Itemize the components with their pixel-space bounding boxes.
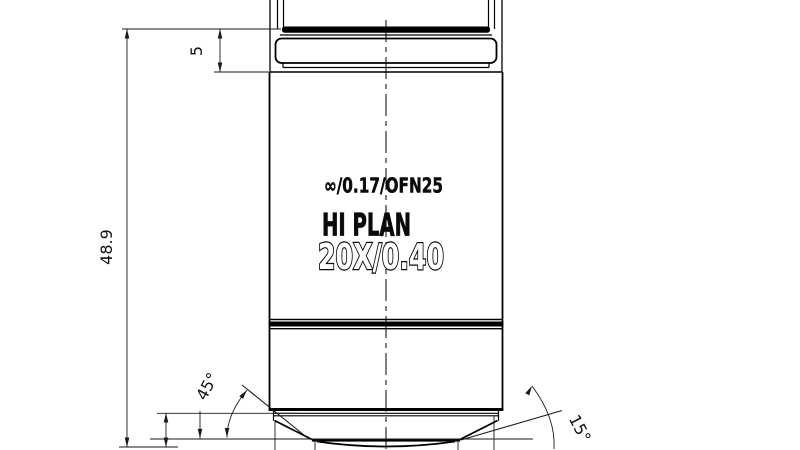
arrow-thread-bottom <box>218 63 223 73</box>
arrow-chamfer-lower <box>225 428 230 438</box>
arrow-height-top <box>125 29 130 39</box>
arrow-step-small <box>198 429 203 439</box>
label-chamfer-angle: 45° <box>192 369 222 403</box>
engraving-magnification-line: 20X/0.40 <box>318 237 444 278</box>
engraved-markings: ∞/0.17/OFN25 HI PLAN 20X/0.40 <box>318 174 444 279</box>
arrow-height-bottom <box>125 438 130 448</box>
engraving-spec-line: ∞/0.17/OFN25 <box>324 174 443 198</box>
arrow-thread-top <box>218 29 223 39</box>
technical-drawing-canvas: 48.9 5 45° 15° ∞/0.17/OFN25 HI PLAN 20X/… <box>0 0 800 450</box>
arrow-front-small-top <box>164 413 169 423</box>
front-angle-arc <box>532 386 554 449</box>
chamfer-ref-line <box>242 385 307 438</box>
cone-right-slant <box>459 421 498 441</box>
label-front-angle: 15° <box>565 411 595 445</box>
chamfer-arc <box>227 390 247 438</box>
arrow-chamfer-upper <box>239 389 248 399</box>
label-thread-length: 5 <box>187 46 206 56</box>
front-angle-ref-line <box>461 411 562 441</box>
objective-drawing: 48.9 5 45° 15° ∞/0.17/OFN25 HI PLAN 20X/… <box>0 0 800 450</box>
label-overall-height: 48.9 <box>97 229 116 265</box>
arrow-front-small-bottom <box>164 438 169 448</box>
